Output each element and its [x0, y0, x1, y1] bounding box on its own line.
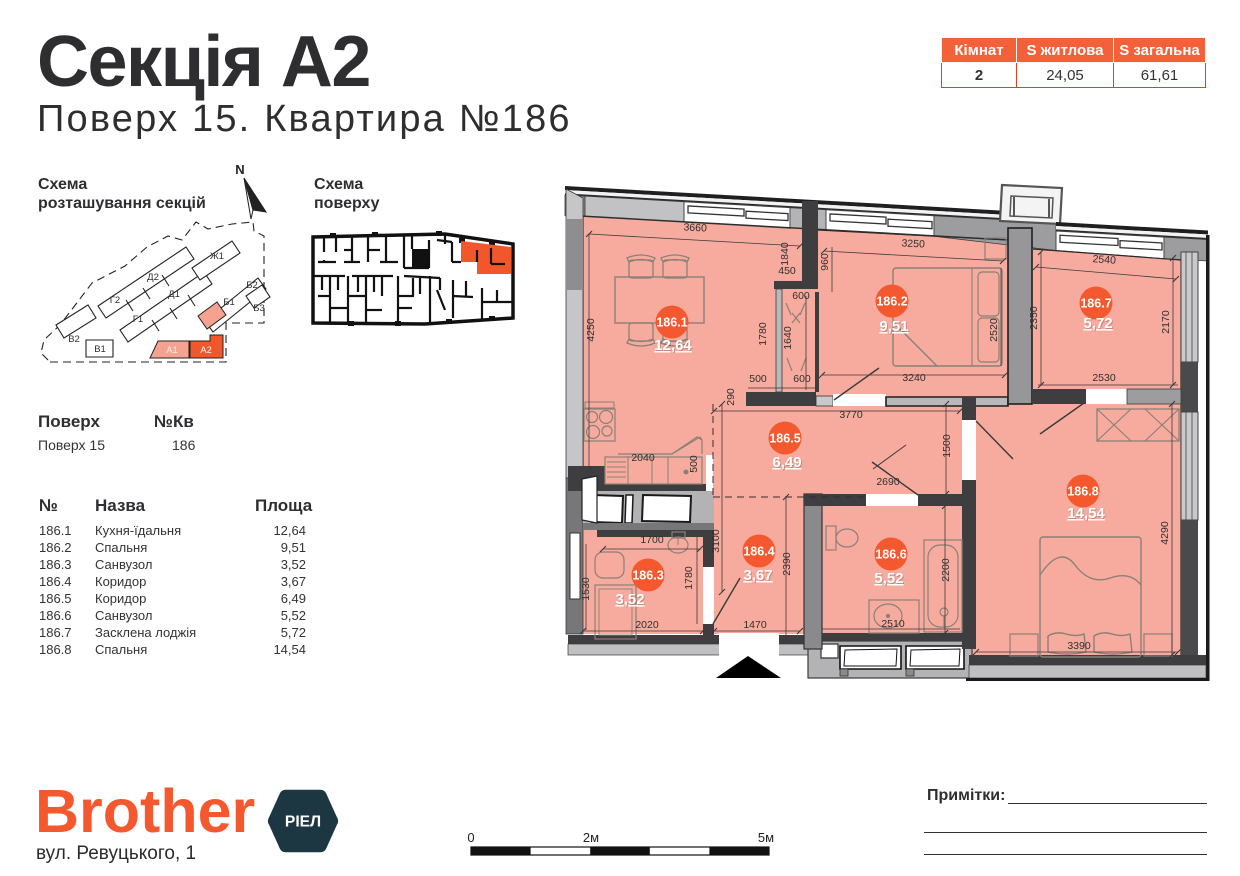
svg-text:А2: А2: [200, 345, 212, 356]
svg-text:2040: 2040: [631, 452, 655, 464]
svg-text:2170: 2170: [1160, 310, 1172, 334]
svg-text:В2: В2: [68, 334, 80, 345]
svg-text:186.3: 186.3: [632, 569, 663, 583]
svg-text:2530: 2530: [1092, 372, 1116, 384]
svg-text:1530: 1530: [580, 577, 592, 601]
svg-text:2м: 2м: [583, 830, 599, 845]
svg-text:2390: 2390: [781, 552, 793, 576]
svg-text:4250: 4250: [585, 318, 597, 342]
svg-text:В1: В1: [94, 344, 106, 355]
svg-text:1640: 1640: [782, 326, 794, 350]
svg-text:500: 500: [688, 455, 700, 473]
svg-text:2350: 2350: [1028, 306, 1040, 330]
svg-text:450: 450: [778, 265, 796, 277]
svg-text:2510: 2510: [881, 618, 905, 630]
svg-text:1500: 1500: [941, 434, 953, 458]
svg-text:186.7: 186.7: [1080, 297, 1111, 311]
svg-text:3770: 3770: [839, 409, 863, 421]
svg-text:2200: 2200: [940, 558, 952, 582]
svg-text:Б2: Б2: [246, 280, 258, 291]
svg-text:4290: 4290: [1159, 521, 1171, 545]
svg-text:6,49: 6,49: [772, 454, 801, 471]
svg-text:1470: 1470: [743, 619, 767, 631]
svg-text:2690: 2690: [876, 476, 900, 488]
svg-text:0: 0: [467, 830, 474, 845]
svg-text:2540: 2540: [1092, 253, 1116, 267]
svg-text:600: 600: [792, 290, 810, 302]
svg-text:Д1: Д1: [168, 289, 180, 300]
svg-text:290: 290: [725, 388, 737, 406]
svg-text:2520: 2520: [988, 318, 1000, 342]
svg-text:5,72: 5,72: [1083, 315, 1112, 332]
svg-text:12,64: 12,64: [654, 337, 692, 354]
svg-text:3,52: 3,52: [615, 591, 644, 608]
svg-text:1840: 1840: [779, 242, 791, 266]
svg-text:3100: 3100: [710, 529, 722, 553]
svg-text:Ж1: Ж1: [210, 251, 224, 262]
svg-text:5,52: 5,52: [874, 570, 903, 587]
svg-text:Г2: Г2: [110, 295, 120, 306]
svg-text:Б3: Б3: [253, 303, 265, 314]
svg-text:500: 500: [749, 373, 767, 385]
svg-text:3390: 3390: [1067, 640, 1091, 652]
svg-text:N: N: [235, 162, 244, 177]
svg-text:Г1: Г1: [133, 314, 143, 325]
svg-text:3240: 3240: [902, 372, 926, 384]
svg-text:186.6: 186.6: [875, 548, 906, 562]
svg-text:186.4: 186.4: [743, 545, 774, 559]
svg-text:14,54: 14,54: [1067, 505, 1105, 522]
svg-text:186.1: 186.1: [656, 316, 687, 330]
svg-text:Д2: Д2: [147, 272, 159, 283]
svg-text:186.2: 186.2: [876, 295, 907, 309]
svg-text:9,51: 9,51: [879, 318, 908, 335]
svg-text:1780: 1780: [757, 322, 769, 346]
svg-text:3250: 3250: [901, 237, 925, 250]
svg-text:А1: А1: [166, 345, 178, 356]
svg-text:2020: 2020: [635, 619, 659, 631]
svg-text:186.5: 186.5: [769, 432, 800, 446]
svg-text:5м: 5м: [758, 830, 774, 845]
svg-text:186.8: 186.8: [1067, 485, 1098, 499]
svg-text:1700: 1700: [640, 534, 664, 546]
svg-text:1780: 1780: [683, 566, 695, 590]
svg-text:960: 960: [819, 253, 831, 271]
svg-text:3,67: 3,67: [743, 567, 772, 584]
svg-text:600: 600: [793, 373, 811, 385]
svg-text:3660: 3660: [683, 221, 707, 234]
svg-text:Б1: Б1: [223, 297, 235, 308]
